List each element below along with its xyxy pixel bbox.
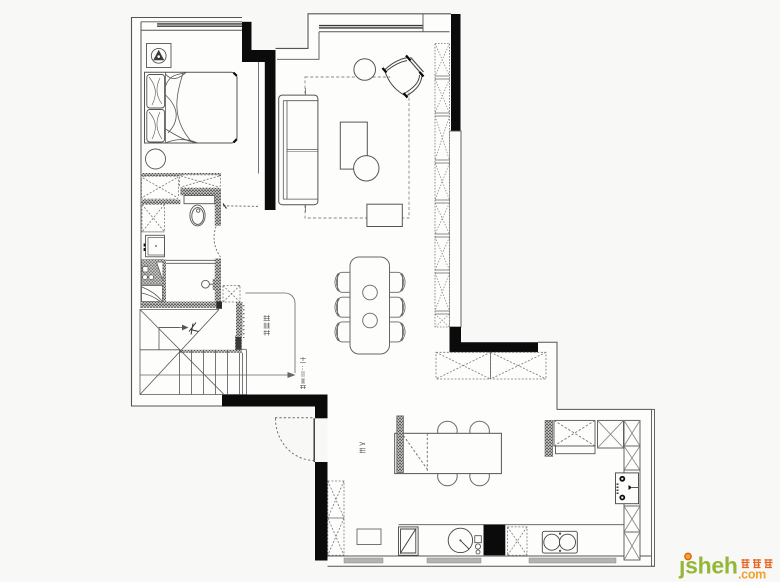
svg-text:.com: .com bbox=[738, 568, 766, 582]
